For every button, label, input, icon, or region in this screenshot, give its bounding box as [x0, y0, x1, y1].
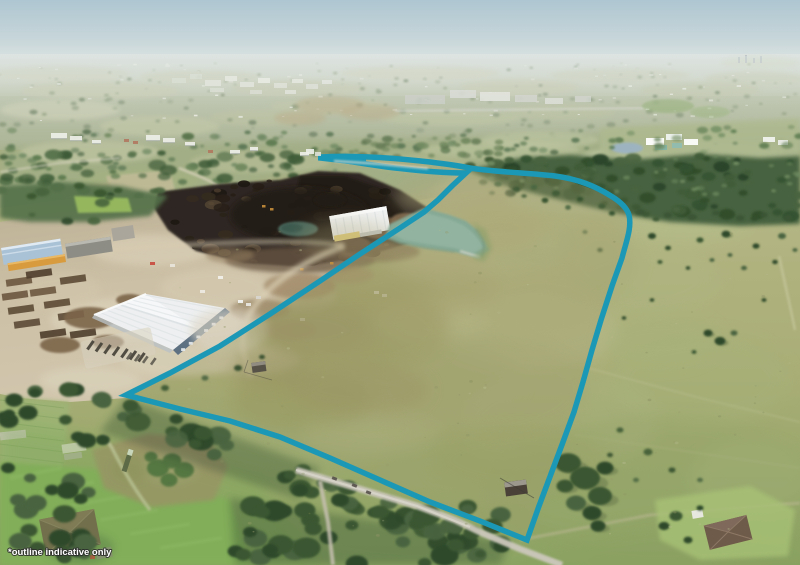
svg-text:*outline indicative only: *outline indicative only	[8, 547, 112, 558]
